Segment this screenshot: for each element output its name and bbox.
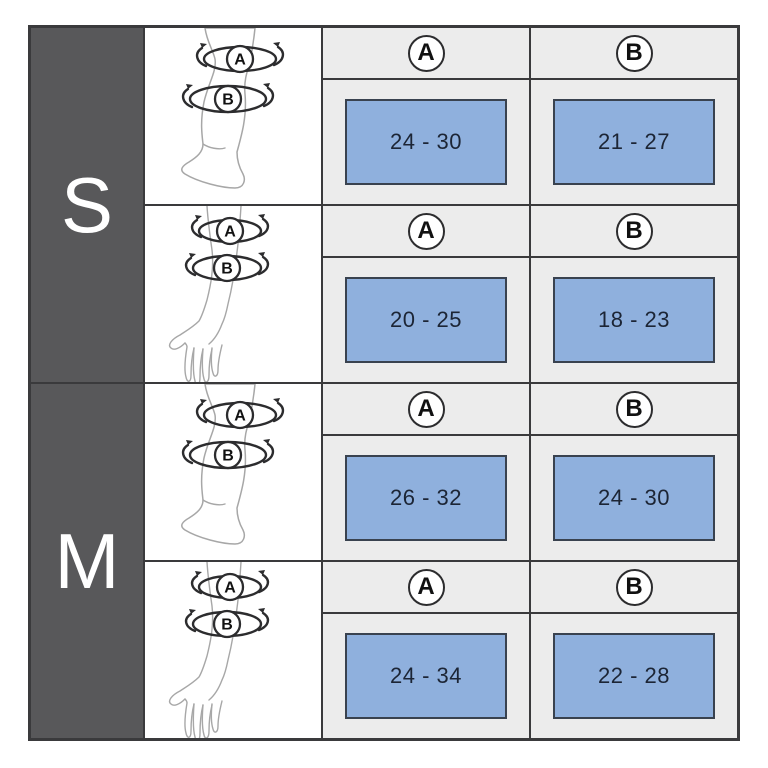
column-header-b: B — [531, 206, 737, 258]
value-range-s-leg-a: 24 - 30 — [345, 99, 507, 185]
measure-cell-s-arm-a: A 20 - 25 — [323, 206, 529, 382]
value-range-m-arm-a: 24 - 34 — [345, 633, 507, 719]
leg-illustration-cell — [145, 28, 321, 204]
marker-a-badge: A — [408, 35, 445, 72]
measure-cell-m-leg-b: B 24 - 30 — [531, 384, 737, 560]
measure-cell-s-leg-b: B 21 - 27 — [531, 28, 737, 204]
value-range-m-leg-b: 24 - 30 — [553, 455, 715, 541]
size-cell-s: S — [31, 28, 143, 382]
leg-illustration — [145, 384, 321, 560]
marker-b-badge: B — [616, 213, 653, 250]
value-area: 24 - 30 — [323, 80, 529, 204]
value-area: 18 - 23 — [531, 258, 737, 382]
size-chart-image: S A 24 - 30 B 21 - 27 A — [0, 0, 768, 768]
value-range-s-arm-b: 18 - 23 — [553, 277, 715, 363]
size-chart-table: S A 24 - 30 B 21 - 27 A — [28, 25, 740, 741]
arm-illustration-cell — [145, 206, 321, 382]
column-header-b: B — [531, 28, 737, 80]
leg-illustration — [145, 28, 321, 204]
column-header-a: A — [323, 28, 529, 80]
value-area: 20 - 25 — [323, 258, 529, 382]
arm-illustration-cell — [145, 562, 321, 738]
column-header-a: A — [323, 384, 529, 436]
value-area: 24 - 30 — [531, 436, 737, 560]
value-area: 21 - 27 — [531, 80, 737, 204]
size-cell-m: M — [31, 384, 143, 738]
marker-b-badge: B — [616, 569, 653, 606]
column-header-b: B — [531, 562, 737, 614]
value-range-m-leg-a: 26 - 32 — [345, 455, 507, 541]
value-range-s-arm-a: 20 - 25 — [345, 277, 507, 363]
arm-illustration — [145, 206, 321, 382]
marker-a-badge: A — [408, 391, 445, 428]
column-header-a: A — [323, 206, 529, 258]
measure-cell-m-arm-a: A 24 - 34 — [323, 562, 529, 738]
measure-cell-s-leg-a: A 24 - 30 — [323, 28, 529, 204]
marker-a-badge: A — [408, 213, 445, 250]
value-area: 22 - 28 — [531, 614, 737, 738]
column-header-b: B — [531, 384, 737, 436]
measure-cell-m-leg-a: A 26 - 32 — [323, 384, 529, 560]
arm-illustration — [145, 562, 321, 738]
leg-illustration-cell — [145, 384, 321, 560]
marker-b-badge: B — [616, 35, 653, 72]
value-area: 24 - 34 — [323, 614, 529, 738]
value-range-m-arm-b: 22 - 28 — [553, 633, 715, 719]
value-range-s-leg-b: 21 - 27 — [553, 99, 715, 185]
measure-cell-m-arm-b: B 22 - 28 — [531, 562, 737, 738]
value-area: 26 - 32 — [323, 436, 529, 560]
marker-b-badge: B — [616, 391, 653, 428]
measure-cell-s-arm-b: B 18 - 23 — [531, 206, 737, 382]
marker-a-badge: A — [408, 569, 445, 606]
column-header-a: A — [323, 562, 529, 614]
